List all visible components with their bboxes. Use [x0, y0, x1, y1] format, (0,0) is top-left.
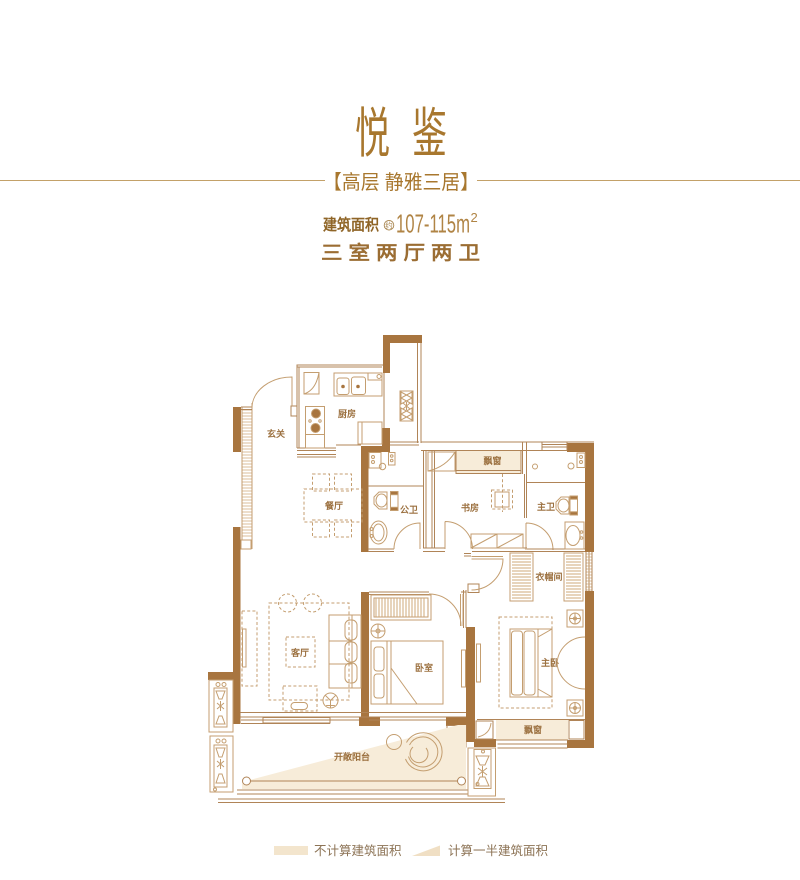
svg-text:107-115m: 107-115m: [396, 209, 470, 239]
svg-text:公卫: 公卫: [400, 505, 418, 515]
svg-text:不计算建筑面积: 不计算建筑面积: [314, 843, 402, 858]
svg-text:【高层 静雅三居】: 【高层 静雅三居】: [323, 171, 479, 194]
svg-text:主卫: 主卫: [537, 501, 555, 512]
svg-text:2: 2: [471, 210, 478, 225]
svg-text:飘窗: 飘窗: [483, 455, 501, 466]
svg-text:衣帽间: 衣帽间: [535, 571, 562, 582]
svg-text:建筑面积: 建筑面积: [323, 215, 379, 234]
svg-text:主卧: 主卧: [541, 657, 559, 668]
svg-text:计算一半建筑面积: 计算一半建筑面积: [448, 843, 548, 858]
svg-text:三 室 两 厅 两 卫: 三 室 两 厅 两 卫: [321, 241, 480, 264]
svg-text:悦: 悦: [355, 104, 390, 164]
svg-text:开敞阳台: 开敞阳台: [334, 751, 370, 762]
svg-text:飘窗: 飘窗: [524, 724, 542, 735]
svg-text:餐厅: 餐厅: [324, 500, 343, 511]
svg-text:客厅: 客厅: [290, 647, 309, 658]
svg-text:鉴: 鉴: [412, 104, 447, 164]
svg-text:卧室: 卧室: [415, 662, 433, 673]
svg-text:约: 约: [385, 220, 393, 230]
svg-text:书房: 书房: [461, 502, 479, 513]
svg-text:玄关: 玄关: [267, 428, 285, 439]
svg-text:厨房: 厨房: [338, 408, 356, 419]
